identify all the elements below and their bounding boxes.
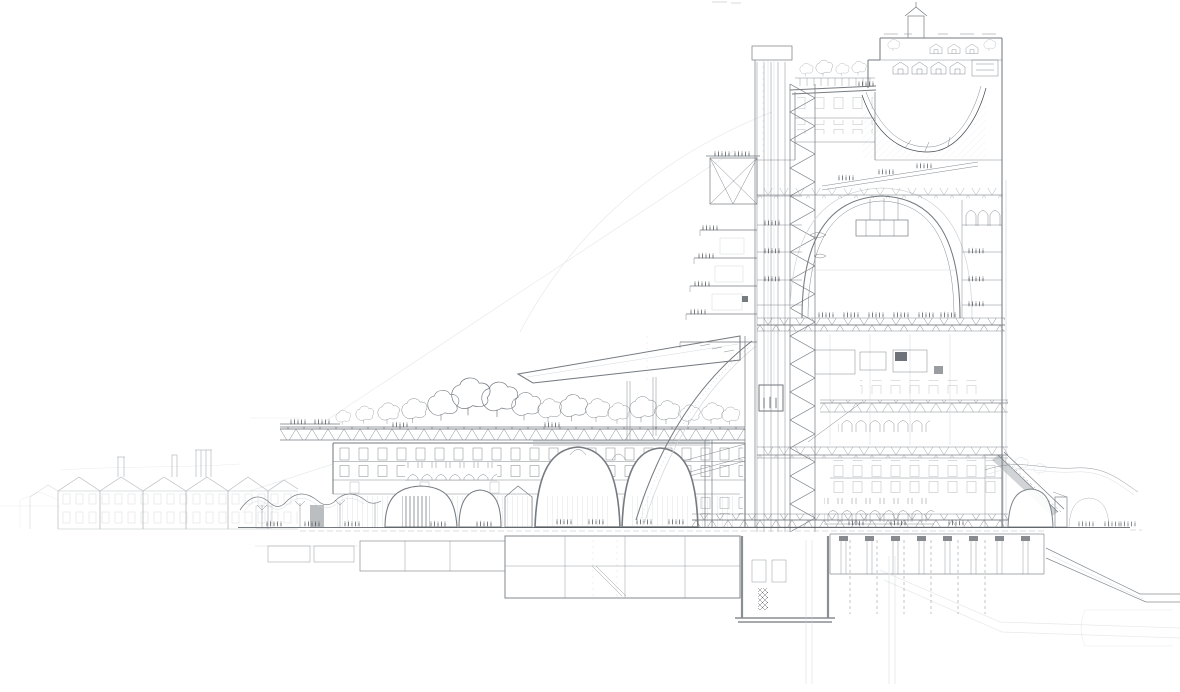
podium-roof-garden xyxy=(336,378,740,427)
podium-building xyxy=(280,341,756,527)
lift-shaft xyxy=(752,46,815,532)
ground-line xyxy=(238,528,1142,532)
drawing-canvas: Sectional perspective drawing of a layer… xyxy=(0,0,1180,692)
section-drawing: Sectional perspective drawing of a layer… xyxy=(0,0,1180,692)
basement-levels xyxy=(255,534,1180,646)
west-terraces xyxy=(680,151,760,348)
tower-interior-rooms xyxy=(808,334,980,445)
auditorium-wing xyxy=(518,336,740,440)
warehouse-row xyxy=(30,450,324,529)
